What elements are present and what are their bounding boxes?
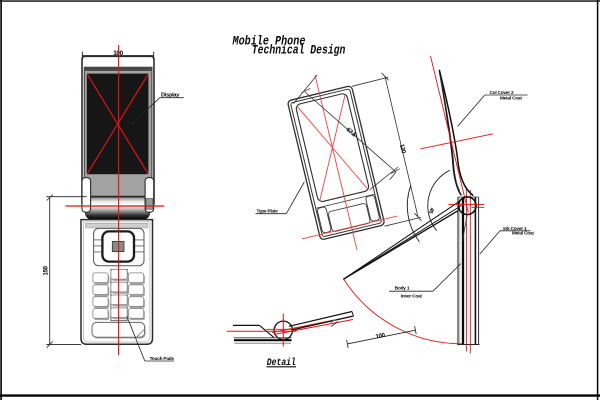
svg-text:Metal Coat: Metal Coat (500, 95, 522, 100)
svg-text:150: 150 (42, 265, 49, 275)
svg-text:Col Cover 2: Col Cover 2 (490, 90, 514, 95)
svg-text:Technical Design: Technical Design (252, 43, 346, 58)
svg-text:Touch Pads: Touch Pads (150, 356, 175, 361)
svg-text:Body 1: Body 1 (395, 286, 410, 291)
svg-text:Inner Coat: Inner Coat (401, 293, 423, 298)
svg-text:Type Plate: Type Plate (257, 209, 279, 214)
